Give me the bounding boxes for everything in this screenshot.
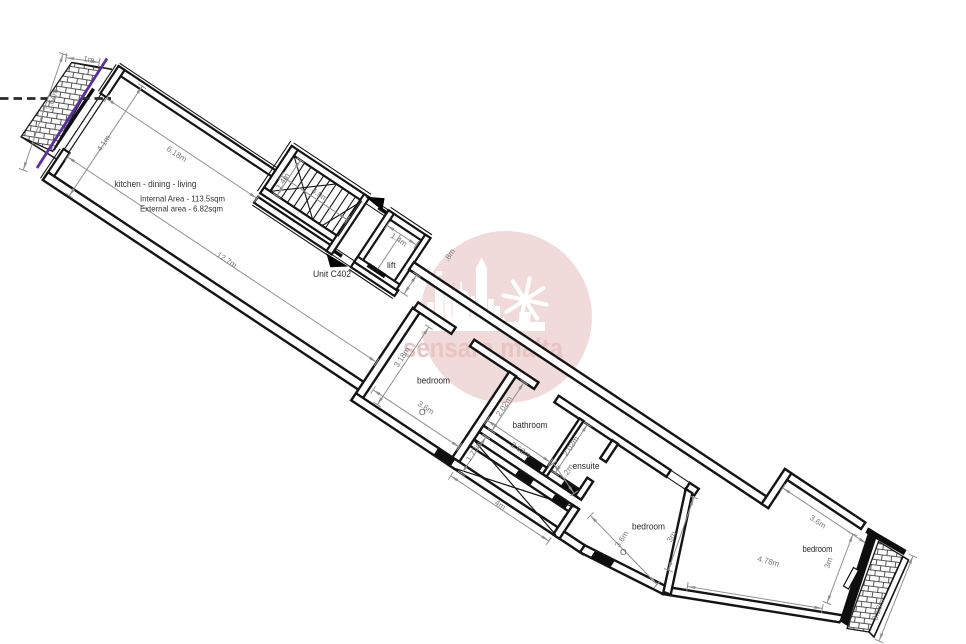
svg-text:bedroom: bedroom <box>803 544 833 554</box>
svg-text:External area - 6.82sqm: External area - 6.82sqm <box>140 204 223 214</box>
svg-text:bedroom: bedroom <box>632 522 665 532</box>
svg-text:kitchen - dining - living: kitchen - dining - living <box>115 179 197 189</box>
svg-text:bathroom: bathroom <box>513 420 548 430</box>
svg-text:O: O <box>620 547 627 557</box>
svg-text:lift: lift <box>387 260 396 270</box>
svg-text:Internal Area - 113.5sqm: Internal Area - 113.5sqm <box>140 194 225 204</box>
svg-text:ensuite: ensuite <box>573 461 600 471</box>
svg-text:Unit C402: Unit C402 <box>313 269 351 279</box>
svg-text:bedroom: bedroom <box>417 376 450 386</box>
svg-text:O: O <box>419 407 426 417</box>
